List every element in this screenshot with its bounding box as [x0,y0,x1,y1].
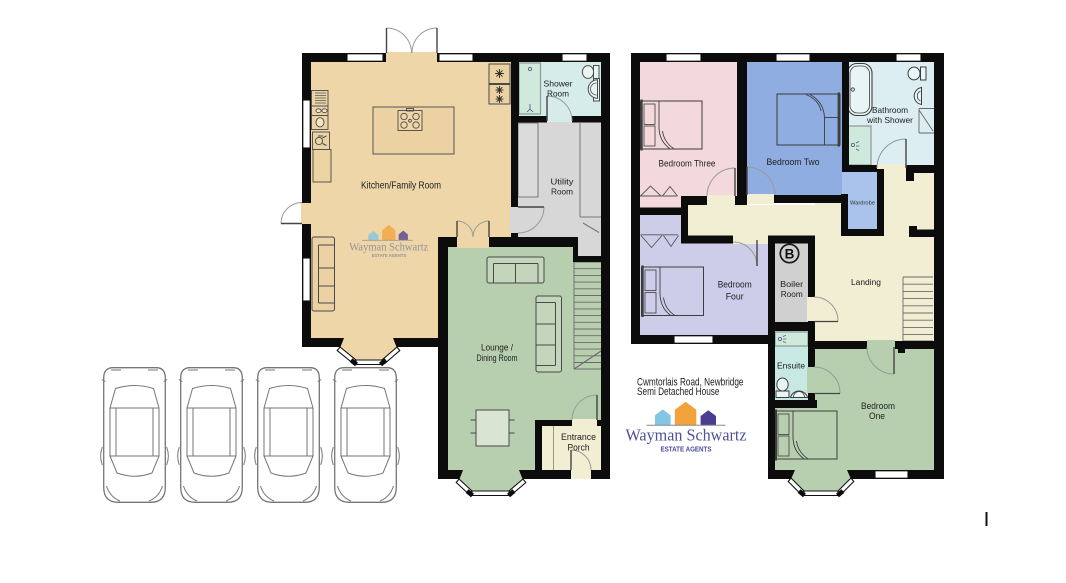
svg-text:ESTATE AGENTS: ESTATE AGENTS [661,445,712,454]
svg-text:Four: Four [726,291,744,302]
svg-text:Utility: Utility [551,177,575,187]
svg-text:Wayman Schwartz: Wayman Schwartz [626,426,747,445]
svg-text:Bedroom Three: Bedroom Three [659,158,716,169]
svg-text:Bedroom: Bedroom [718,280,752,291]
svg-text:Kitchen/Family Room: Kitchen/Family Room [361,181,441,192]
svg-text:Room: Room [551,187,573,197]
svg-text:Shower: Shower [544,79,573,89]
svg-text:Bathroom: Bathroom [872,105,908,115]
svg-text:One: One [869,411,885,422]
svg-text:Entrance: Entrance [561,432,596,442]
svg-text:Wayman Schwartz: Wayman Schwartz [349,241,428,253]
svg-text:Lounge /: Lounge / [481,343,514,353]
svg-text:Wardrobe: Wardrobe [850,201,875,207]
svg-text:with Shower: with Shower [866,115,913,125]
svg-text:Dining Room: Dining Room [477,353,518,363]
svg-text:Semi Detached House: Semi Detached House [637,386,720,398]
svg-text:Bedroom Two: Bedroom Two [767,157,820,168]
svg-text:Porch: Porch [568,443,590,453]
svg-text:B: B [785,246,795,261]
svg-text:Ensuite: Ensuite [777,360,805,370]
svg-text:Boiler: Boiler [780,279,803,289]
svg-text:Room: Room [781,289,803,299]
svg-text:Room: Room [547,89,569,99]
svg-text:ESTATE AGENTS: ESTATE AGENTS [372,253,407,258]
svg-text:Landing: Landing [851,277,881,287]
